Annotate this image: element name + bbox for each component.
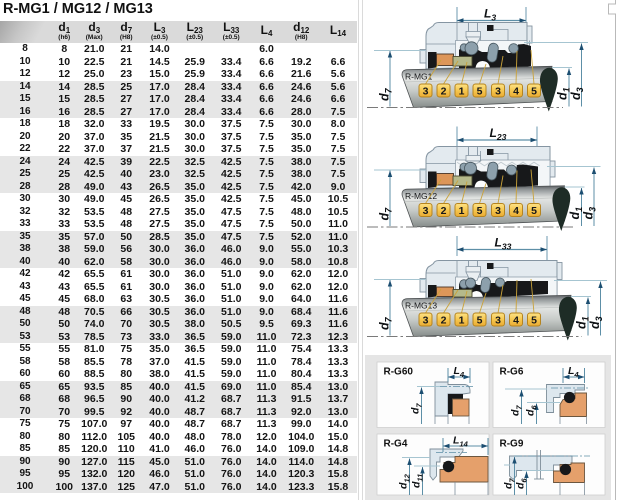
svg-text:4: 4 bbox=[513, 205, 519, 217]
svg-text:3: 3 bbox=[495, 205, 501, 217]
svg-text:d3: d3 bbox=[569, 87, 585, 100]
svg-text:5: 5 bbox=[477, 205, 483, 217]
svg-text:1: 1 bbox=[459, 85, 465, 97]
svg-text:5: 5 bbox=[477, 85, 483, 97]
svg-text:3: 3 bbox=[423, 205, 429, 217]
svg-text:5: 5 bbox=[531, 85, 537, 97]
svg-text:R-G9: R-G9 bbox=[500, 439, 524, 450]
svg-text:L33: L33 bbox=[495, 236, 512, 252]
svg-text:L3: L3 bbox=[484, 7, 496, 23]
svg-text:3: 3 bbox=[495, 314, 501, 326]
svg-text:1: 1 bbox=[459, 314, 465, 326]
svg-text:5: 5 bbox=[531, 314, 537, 326]
svg-text:2: 2 bbox=[441, 314, 447, 326]
svg-text:R-G6: R-G6 bbox=[500, 367, 524, 378]
svg-text:2: 2 bbox=[441, 85, 447, 97]
svg-text:d7: d7 bbox=[378, 316, 394, 330]
svg-text:3: 3 bbox=[423, 314, 429, 326]
svg-text:R-G4: R-G4 bbox=[384, 439, 408, 450]
svg-text:1: 1 bbox=[459, 205, 465, 217]
svg-text:L23: L23 bbox=[490, 126, 507, 142]
svg-text:5: 5 bbox=[531, 205, 537, 217]
svg-text:3: 3 bbox=[423, 85, 429, 97]
svg-text:d7: d7 bbox=[378, 207, 394, 221]
svg-text:5: 5 bbox=[477, 314, 483, 326]
svg-text:R-G60: R-G60 bbox=[384, 367, 414, 378]
svg-text:4: 4 bbox=[513, 85, 519, 97]
svg-text:d3: d3 bbox=[582, 207, 598, 220]
svg-text:4: 4 bbox=[513, 314, 519, 326]
svg-text:2: 2 bbox=[441, 205, 447, 217]
svg-text:3: 3 bbox=[495, 85, 501, 97]
svg-text:d3: d3 bbox=[588, 316, 604, 329]
svg-text:d7: d7 bbox=[378, 87, 394, 101]
